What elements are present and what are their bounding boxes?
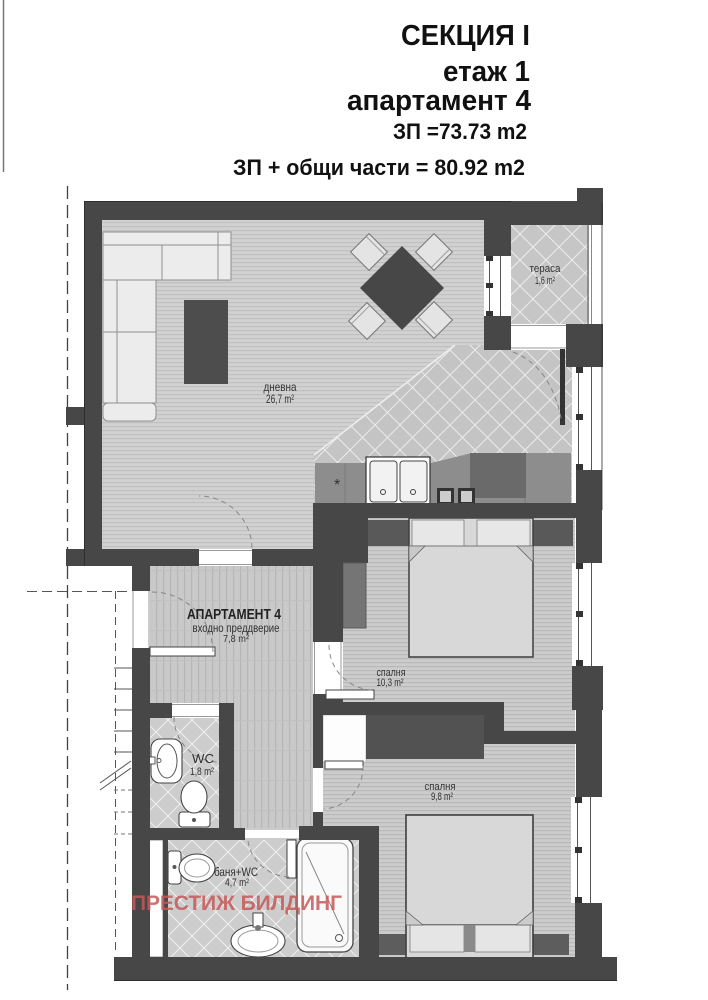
svg-text:АПАРТАМЕНТ 4: АПАРТАМЕНТ 4 — [187, 607, 281, 623]
svg-text:10,3 m²: 10,3 m² — [377, 677, 404, 689]
svg-text:ЗП + общи части = 80.92 m2: ЗП + общи части = 80.92 m2 — [233, 155, 525, 180]
svg-text:4,7 m²: 4,7 m² — [225, 877, 249, 889]
svg-text:7,8 m²: 7,8 m² — [223, 633, 249, 645]
svg-text:ПРЕСТИЖ БИЛДИНГ: ПРЕСТИЖ БИЛДИНГ — [131, 892, 342, 915]
svg-text:26,7 m²: 26,7 m² — [266, 392, 294, 406]
svg-text:ЗП =73.73 m2: ЗП =73.73 m2 — [393, 119, 527, 144]
svg-text:СЕКЦИЯ I: СЕКЦИЯ I — [401, 20, 530, 52]
svg-text:1,6 m²: 1,6 m² — [535, 275, 555, 287]
svg-text:етаж 1: етаж 1 — [443, 56, 530, 88]
svg-text:*: * — [334, 477, 340, 494]
svg-text:1,8 m²: 1,8 m² — [190, 766, 214, 778]
svg-text:9,8 m²: 9,8 m² — [431, 791, 453, 803]
svg-text:тераса: тераса — [530, 263, 562, 275]
svg-text:WC: WC — [192, 751, 214, 766]
svg-text:апартамент 4: апартамент 4 — [347, 85, 531, 117]
